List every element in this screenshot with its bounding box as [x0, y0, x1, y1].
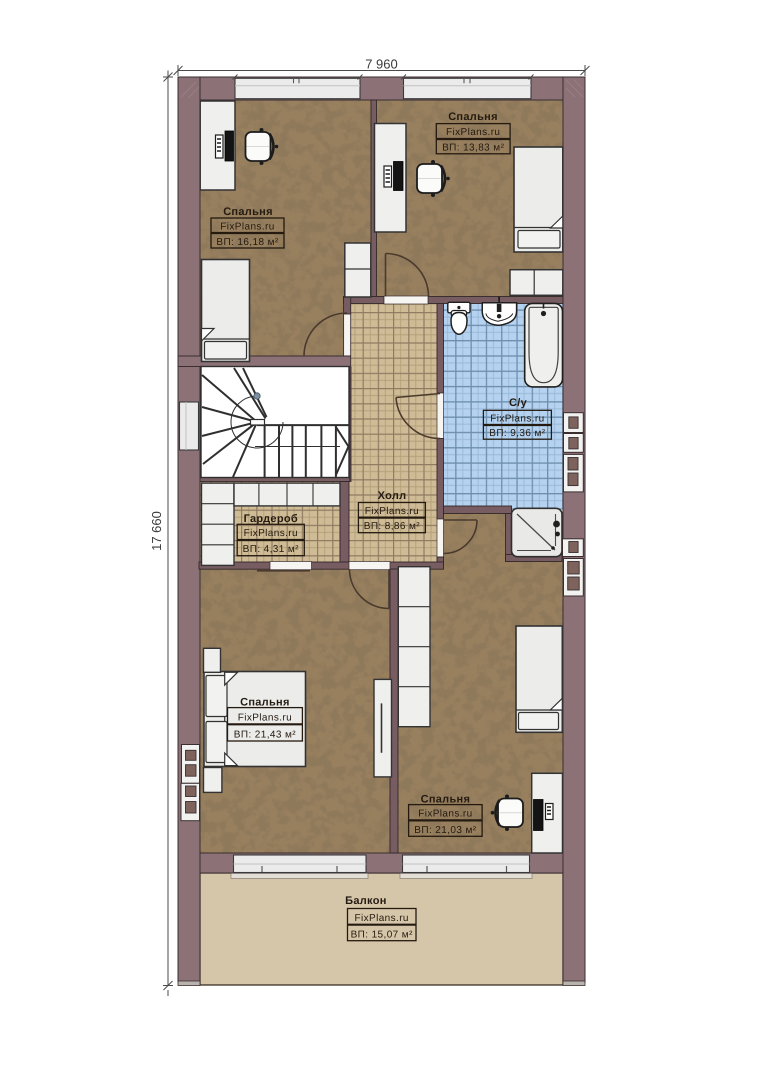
- svg-text:ВП: 15,07 м²: ВП: 15,07 м²: [351, 929, 413, 940]
- svg-text:ВП: 21,43 м²: ВП: 21,43 м²: [234, 729, 296, 740]
- svg-text:ВП: 16,18 м²: ВП: 16,18 м²: [216, 237, 278, 248]
- svg-text:ВП: 8,86 м²: ВП: 8,86 м²: [364, 521, 421, 532]
- svg-text:Холл: Холл: [378, 490, 407, 502]
- svg-text:7 960: 7 960: [365, 57, 398, 72]
- svg-text:Спальня: Спальня: [448, 111, 498, 123]
- svg-text:ВП: 13,83 м²: ВП: 13,83 м²: [442, 143, 504, 154]
- svg-text:Спальня: Спальня: [421, 794, 471, 806]
- svg-text:Гардероб: Гардероб: [244, 513, 298, 525]
- svg-text:FixPlans.ru: FixPlans.ru: [418, 809, 472, 820]
- svg-text:FixPlans.ru: FixPlans.ru: [244, 528, 298, 539]
- svg-text:FixPlans.ru: FixPlans.ru: [365, 506, 419, 517]
- svg-text:С/у: С/у: [509, 397, 528, 409]
- svg-text:ВП: 9,36 м²: ВП: 9,36 м²: [489, 428, 546, 439]
- svg-text:ВП: 21,03 м²: ВП: 21,03 м²: [414, 825, 476, 836]
- svg-text:17 660: 17 660: [149, 511, 164, 551]
- svg-text:Балкон: Балкон: [345, 895, 387, 907]
- svg-text:FixPlans.ru: FixPlans.ru: [238, 712, 292, 723]
- svg-text:FixPlans.ru: FixPlans.ru: [354, 913, 408, 924]
- svg-text:Спальня: Спальня: [223, 206, 273, 218]
- svg-text:FixPlans.ru: FixPlans.ru: [490, 413, 544, 424]
- svg-text:Спальня: Спальня: [240, 697, 290, 709]
- svg-text:FixPlans.ru: FixPlans.ru: [446, 127, 500, 138]
- svg-text:FixPlans.ru: FixPlans.ru: [220, 222, 274, 233]
- svg-text:ВП: 4,31 м²: ВП: 4,31 м²: [243, 544, 300, 555]
